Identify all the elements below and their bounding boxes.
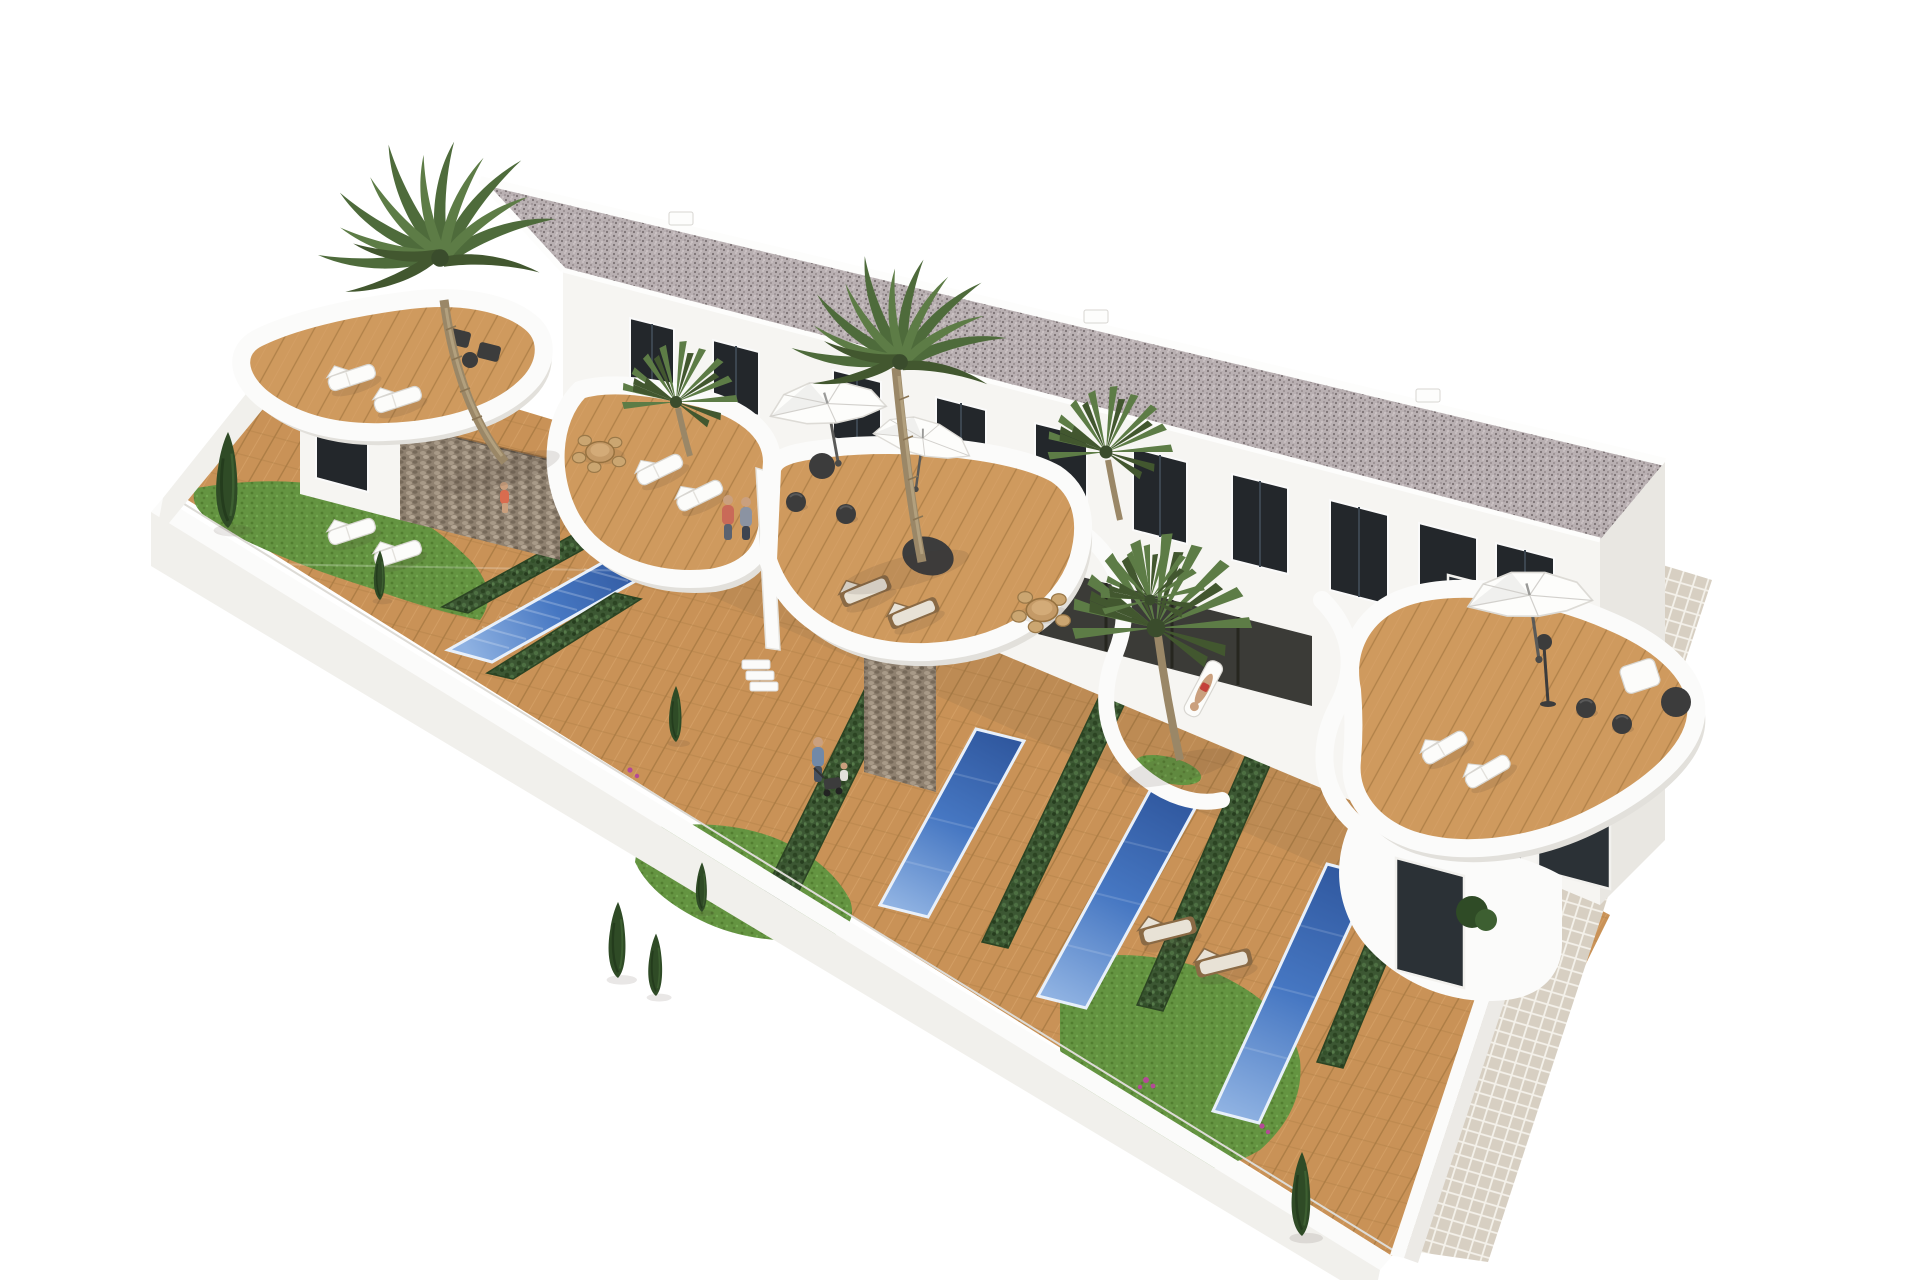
terrace-1 bbox=[241, 298, 548, 441]
roof-vent-2 bbox=[1084, 310, 1108, 323]
terrace-3-table bbox=[809, 453, 835, 479]
render-stage: Aerial 3D architectural render of a mode… bbox=[0, 0, 1920, 1280]
roof-vent-1 bbox=[669, 212, 693, 225]
roof-vent-3 bbox=[1416, 389, 1440, 402]
egg-chair bbox=[1661, 687, 1691, 717]
scene-render: Aerial 3D architectural render of a mode… bbox=[0, 0, 1920, 1280]
glass-door-unit4 bbox=[1396, 858, 1464, 988]
